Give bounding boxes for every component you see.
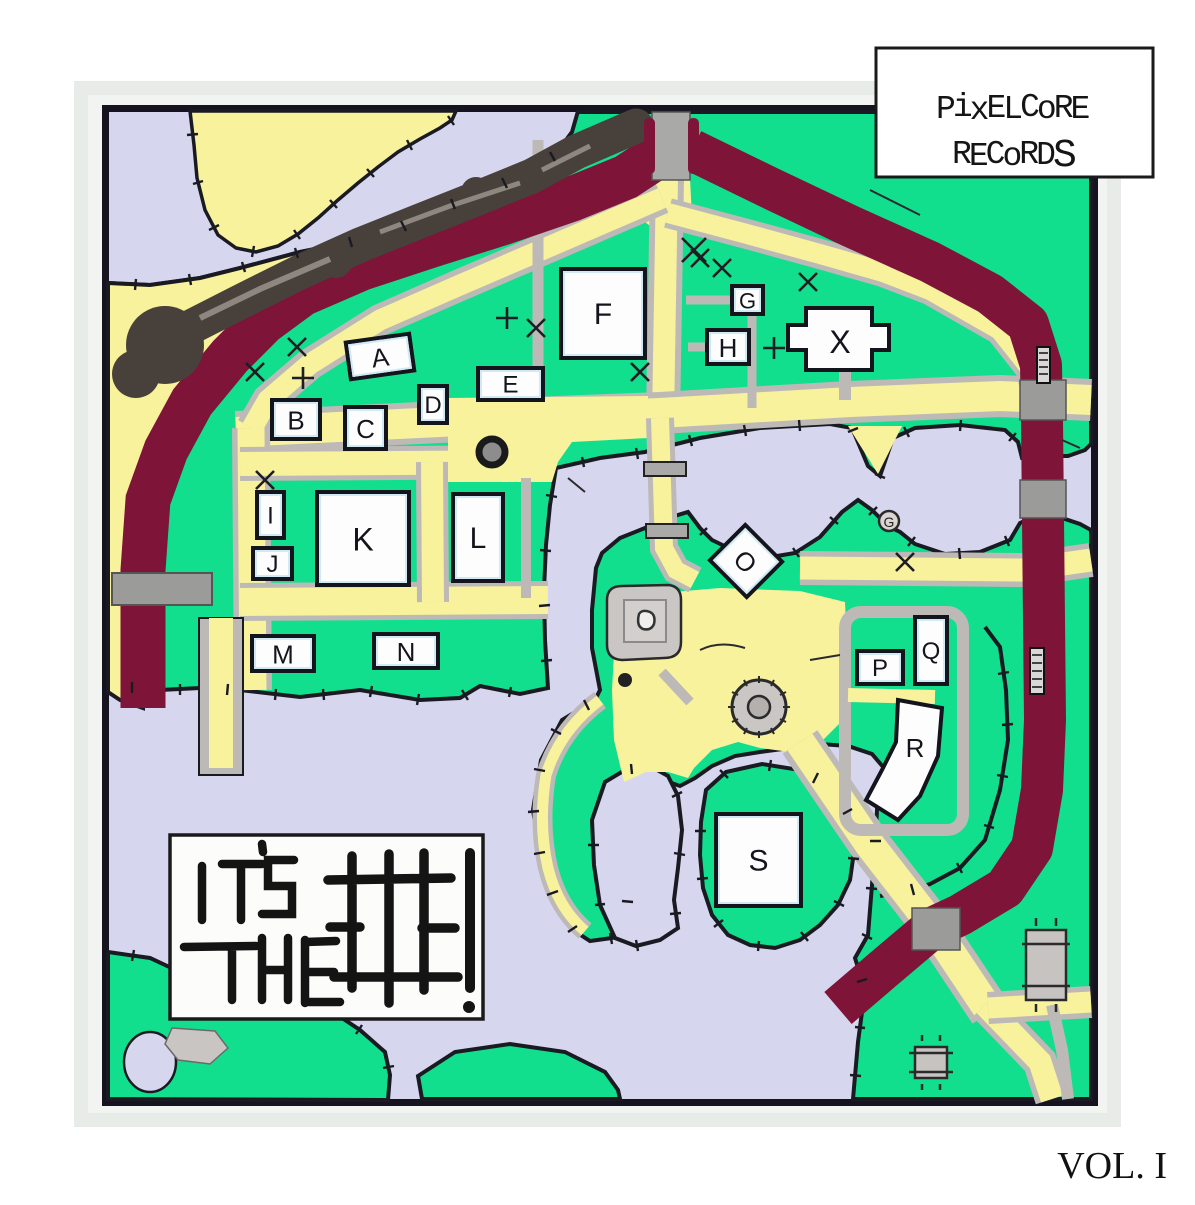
svg-text:G: G xyxy=(739,289,756,314)
svg-text:H: H xyxy=(719,333,738,363)
svg-text:X: X xyxy=(829,324,850,360)
svg-text:B: B xyxy=(287,406,304,436)
svg-text:M: M xyxy=(272,640,294,670)
svg-text:J: J xyxy=(267,551,279,578)
svg-text:F: F xyxy=(594,298,612,331)
svg-text:RECoRDS: RECoRDS xyxy=(952,134,1076,179)
svg-text:L: L xyxy=(470,522,487,555)
svg-text:VOL. I: VOL. I xyxy=(1057,1145,1167,1187)
svg-text:N: N xyxy=(397,637,416,667)
svg-text:I: I xyxy=(267,503,274,530)
svg-text:G: G xyxy=(884,514,895,530)
svg-text:S: S xyxy=(748,845,768,878)
svg-text:R: R xyxy=(906,733,925,763)
svg-text:C: C xyxy=(356,414,375,444)
svg-text:Q: Q xyxy=(922,638,941,665)
svg-text:PixELCoRE: PixELCoRE xyxy=(936,89,1090,129)
svg-text:K: K xyxy=(352,522,373,558)
svg-text:D: D xyxy=(424,392,441,419)
svg-text:P: P xyxy=(872,655,888,682)
svg-text:E: E xyxy=(502,372,518,399)
